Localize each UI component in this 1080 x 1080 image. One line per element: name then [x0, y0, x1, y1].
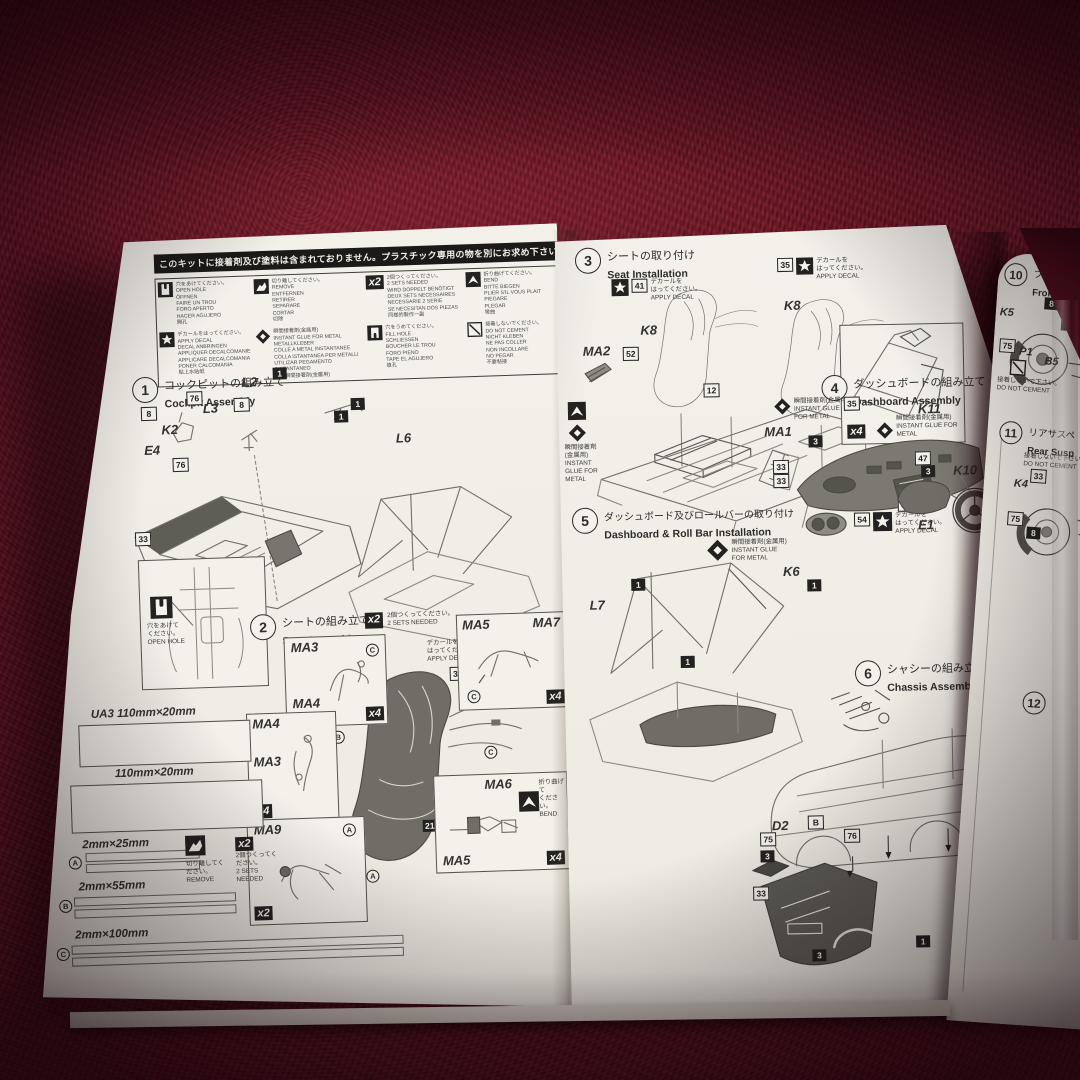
step-5-number: 5: [572, 508, 598, 534]
part-label-k10: K10: [953, 462, 977, 477]
part-label-l7: L7: [589, 597, 604, 612]
part-number-badge: 3: [808, 435, 822, 447]
part-label-ma4: MA4: [292, 695, 320, 711]
instant-glue-icon: [568, 424, 586, 442]
part-number-badge: 76: [186, 391, 202, 406]
do-not-cement-icon: [467, 322, 482, 337]
legend-remove-text: 切り離してください。 REMOVE ENTFERNEN RETIRER SEPA…: [272, 277, 325, 323]
step-1-title-jp: コックピットの組み立て: [164, 376, 285, 392]
part-label-k8: K8: [640, 322, 657, 337]
part-number-badge: 1: [631, 579, 645, 591]
legend-bend-text: 折り曲げてください。 BEND BITTE BIEGEN PLIER S'IL …: [483, 270, 541, 316]
remove-icon: [254, 279, 269, 294]
bend-icon: [568, 402, 586, 420]
step-2-title-jp: シートの組み立て: [282, 615, 370, 630]
part-number-badge: 1: [272, 367, 286, 379]
x2-icon: x2: [365, 612, 384, 629]
part-number-badge: 75: [760, 832, 776, 846]
apply-decal-star-icon: [796, 257, 813, 274]
part-label-k11: K11: [918, 401, 941, 416]
part-label-l2: L2: [242, 374, 258, 389]
open-hole-icon: [158, 282, 173, 297]
part-label-ma2: MA2: [583, 343, 611, 359]
count-x4: x4: [546, 689, 565, 704]
part-number-badge: 75: [999, 338, 1016, 353]
strips-x2-note: x2 2個つくってください。 2 SETS NEEDED: [235, 833, 283, 884]
strip-label-2x55: 2mm×55mm: [78, 879, 145, 893]
bend-icon: [519, 791, 540, 812]
strip-2x25: [86, 860, 200, 873]
count-x4: x4: [366, 706, 385, 721]
strip-2x55: [74, 904, 236, 918]
part-number-badge: 33: [1030, 469, 1047, 484]
part-label-b5: B5: [1044, 355, 1059, 368]
part-label-ma5: MA5: [462, 617, 490, 633]
step-11-title-jp: リアサスペ: [1028, 427, 1075, 441]
part-label-l3: L3: [203, 401, 219, 416]
part-number-badge: 8: [1026, 527, 1041, 540]
part-label-k8: K8: [784, 298, 801, 313]
part-number-badge: 2: [1061, 318, 1076, 331]
part-number-badge: 8: [141, 407, 157, 422]
step-11-number: 11: [999, 420, 1024, 445]
bend-note: 折り曲げて ください。 BEND: [538, 778, 565, 819]
ma6-ma5-box: MA6 MA5 折り曲げて ください。 BEND x4: [433, 771, 570, 873]
part-number-badge: 54: [854, 512, 870, 526]
fill-hole-icon: [367, 325, 382, 340]
instant-glue-icon: [255, 329, 270, 344]
belt-buckle-sketch: [469, 633, 551, 690]
part-number-badge: 76: [844, 829, 860, 843]
part-number-badge: 33: [773, 474, 789, 488]
right-page: 3 シートの取り付け Seat Installation 41 デカールを はっ…: [554, 224, 1014, 1020]
legend-x2-text: 2個つくってください。 2 SETS NEEDED WIRD DOPPELT B…: [387, 273, 459, 320]
step-4-glue-note: 瞬間接着剤(金属用) INSTANT GLUE FOR METAL: [774, 397, 852, 422]
legend-bend: 折り曲げてください。 BEND BITTE BIEGEN PLIER S'IL …: [463, 266, 559, 319]
step-4-title-jp: ダッシュボードの組み立て: [853, 376, 985, 391]
legend-instant-glue-text: 瞬間接着剤(金属用) INSTANT GLUE FOR METAL METALL…: [273, 326, 365, 380]
legend-x2: x2 2個つくってください。 2 SETS NEEDED WIRD DOPPEL…: [363, 269, 465, 323]
step-10-number: 10: [1004, 262, 1029, 287]
part-label-k5: K5: [999, 306, 1014, 319]
count-x4: x4: [546, 850, 565, 865]
part-number-badge: 1: [807, 579, 821, 591]
part-number-badge: B: [808, 815, 824, 829]
part-label-ma4: MA4: [252, 716, 280, 732]
do-not-cement-icon: [1009, 359, 1026, 376]
part-label-l6: L6: [396, 430, 412, 445]
part-label-k2: K2: [161, 422, 178, 438]
legend-do-not-cement: 接着しないでください。 DO NOT CEMENT NICHT KLEBEN N…: [465, 317, 561, 377]
x2-icon: x2: [365, 275, 384, 290]
legend-remove: 切り離してください。 REMOVE ENTFERNEN RETIRER SEPA…: [251, 273, 365, 327]
x2-note-text: 2個つくってください。 2 SETS NEEDED: [236, 851, 283, 885]
step-2-x2-note: x2 2個つくってください。 2 SETS NEEDED: [365, 610, 455, 629]
part-label-ma7: MA7: [532, 614, 560, 630]
strip-label-2x100: 2mm×100mm: [75, 927, 149, 941]
part-number-badge: 33: [135, 532, 151, 547]
part-number-badge: 52: [623, 347, 639, 361]
part-label-d2: D2: [772, 818, 789, 833]
x2-note-text: 2個つくってください。 2 SETS NEEDED: [387, 610, 454, 628]
step-12-number: 12: [1022, 691, 1047, 716]
strip-label-ua3: UA3 110mm×20mm: [91, 705, 196, 720]
buckle-assembly-sketch: [443, 797, 531, 856]
step-3-number: 3: [575, 247, 601, 273]
legend-fill-hole: 穴をうめてください。 FILL HOLE SCHLIESSEN BOUCHER …: [365, 320, 467, 380]
part-label-ma3: MA3: [291, 639, 319, 655]
strip-letter-c: C: [366, 643, 379, 656]
strip-label-110x20: 110mm×20mm: [115, 766, 194, 781]
harness-part-sketch: [319, 649, 377, 709]
gauge-pod-sketch: [803, 509, 850, 540]
strip-label-2x25: 2mm×25mm: [82, 837, 149, 851]
step-3-title-jp: シートの取り付け: [607, 250, 695, 264]
part-number-badge: 1: [681, 656, 695, 668]
legend-do-not-cement-text: 接着しないでください。 DO NOT CEMENT NICHT KLEBEN N…: [485, 320, 543, 366]
remove-icon: [185, 835, 206, 856]
part-number-badge: 76: [172, 458, 188, 473]
part-number-badge: 33: [773, 460, 789, 474]
right-page-content: 3 シートの取り付け Seat Installation 41 デカールを はっ…: [554, 224, 1014, 1020]
remove-note-text: 切り離してください。 REMOVE: [186, 859, 229, 884]
bend-icon: [465, 272, 480, 287]
instant-glue-icon: [774, 398, 791, 415]
part-number-badge: 12: [703, 383, 719, 397]
rear-suspension-diagram: [994, 485, 1080, 603]
strip-letter-c: C: [467, 690, 480, 703]
part-number-badge: 1: [334, 410, 348, 422]
part-number-badge: 8: [1044, 297, 1059, 310]
legend-open-hole: 穴をあけてください。 OPEN HOLE ÖFFNEN FAIRE UN TRO…: [156, 276, 254, 330]
photo-of-model-kit-instructions: このキットに接着剤及び塗料は含まれておりません。プラスチック専用の物を別にお求め…: [0, 0, 1080, 1080]
part-label-e4: E4: [144, 443, 160, 459]
step-10-title-jp: フロントサスペンシ: [1033, 269, 1080, 286]
strip-box-110x20: [70, 779, 263, 833]
symbol-legend: 穴をあけてください。 OPEN HOLE ÖFFNEN FAIRE UN TRO…: [154, 265, 561, 387]
strip-letter-c: C: [57, 948, 70, 961]
part-label-p1: P1: [1019, 346, 1033, 359]
part-label-k6: K6: [783, 564, 800, 579]
part-number-badge: 75: [1007, 511, 1024, 526]
legend-apply-decal-text: デカールをはってください。 APPLY DECAL DECAL ANBRINGE…: [177, 330, 251, 377]
step-5-title-jp: ダッシュボード及びロールバーの取り付け: [604, 509, 794, 524]
step-4-title-en: Dashboard Assembly: [854, 395, 961, 409]
open-hole-note: 穴をあけて ください。 OPEN HOLE: [147, 622, 185, 647]
instant-glue-note: 瞬間接着剤(金属用) INSTANT GLUE FOR METAL: [565, 443, 606, 484]
count-x2: x2: [254, 906, 273, 921]
ma2-part-sketch: [581, 359, 616, 400]
strip-letter-a: A: [69, 856, 82, 869]
ma5-ma7-box: MA5 MA7 x4 C: [456, 611, 569, 711]
part-number-badge: 47: [915, 451, 931, 465]
open-hole-icon: [150, 596, 173, 619]
strips-remove-note: 切り離してください。 REMOVE: [185, 835, 229, 885]
ua3-strip-box: [78, 720, 251, 768]
part-number-badge: 8: [233, 398, 249, 413]
part-number-badge: 3: [812, 949, 826, 961]
part-number-badge: 33: [753, 886, 769, 900]
harness-part-sketch: [283, 728, 332, 809]
step-2-number: 2: [250, 614, 277, 641]
part-label-e1: E1: [918, 517, 934, 532]
part-number-badge: 1: [351, 398, 365, 410]
part-number-badge: 1: [916, 935, 930, 947]
part-label-ma6: MA6: [484, 776, 512, 792]
strip-letter-a: A: [343, 823, 356, 836]
x2-icon: x2: [235, 837, 254, 852]
legend-fill-hole-text: 穴をうめてください。 FILL HOLE SCHLIESSEN BOUCHER …: [385, 324, 438, 370]
part-number-badge: 35: [777, 258, 793, 272]
part-number-badge: 3: [760, 850, 774, 862]
part-label-ma3: MA3: [253, 754, 281, 770]
step-6-number: 6: [855, 660, 881, 686]
legend-open-hole-text: 穴をあけてください。 OPEN HOLE ÖFFNEN FAIRE UN TRO…: [176, 280, 229, 326]
strip-letter-b: B: [59, 900, 72, 913]
part-number-badge: 35: [844, 397, 860, 411]
apply-decal-star-icon: [159, 332, 174, 347]
